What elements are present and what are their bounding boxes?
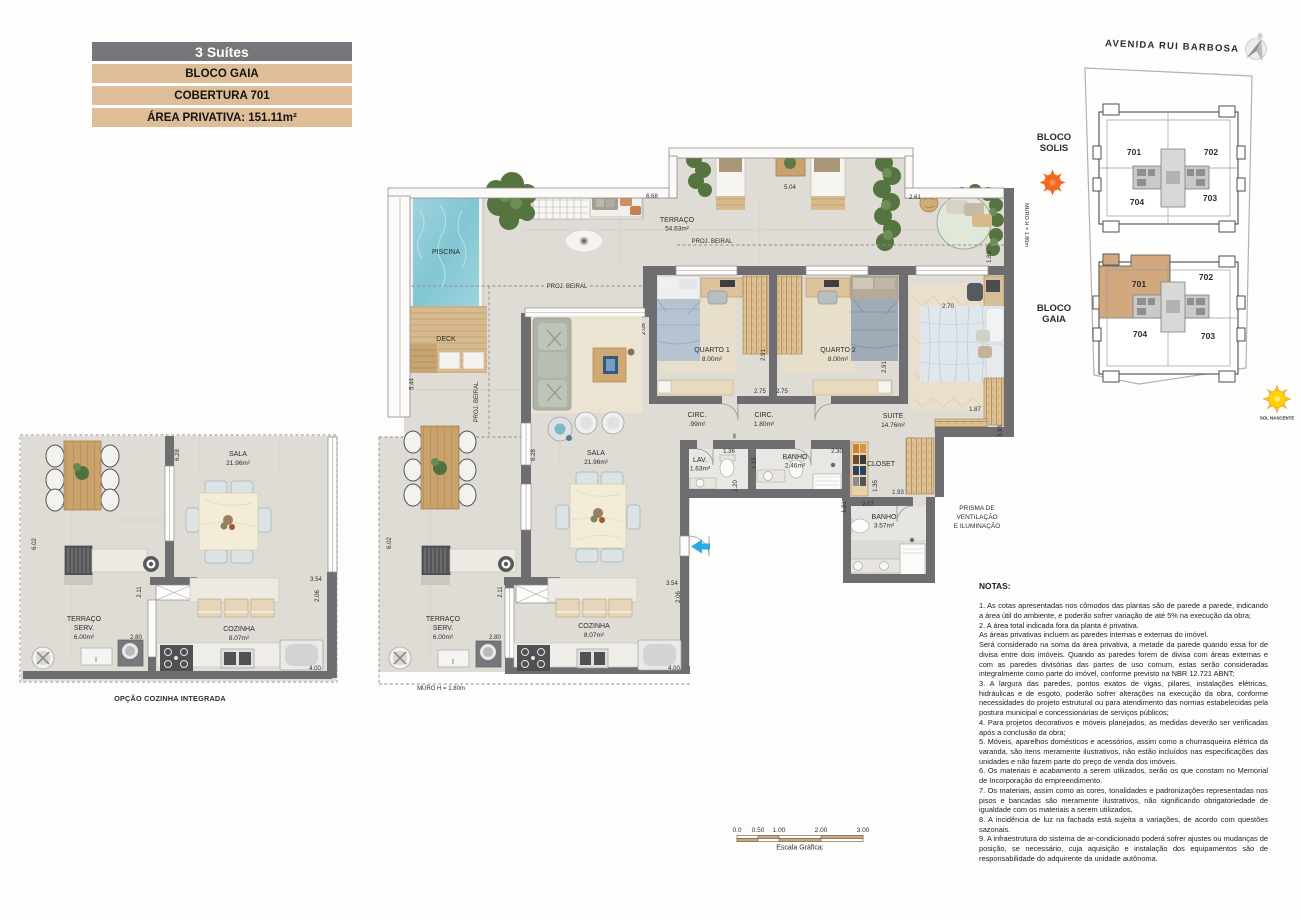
svg-text:1.81: 1.81 [842,501,848,513]
svg-text:1.80: 1.80 [987,251,993,263]
svg-text:8.00m²: 8.00m² [828,356,849,363]
svg-text:CLOSET: CLOSET [867,461,896,468]
svg-text:MURO H = 1.80m: MURO H = 1.80m [417,686,465,692]
svg-text:SOLIS: SOLIS [1040,143,1069,154]
svg-text:4.00: 4.00 [668,666,680,672]
svg-text:5.04: 5.04 [784,185,796,191]
svg-text:LAV.: LAV. [693,457,707,464]
svg-text:2.46m²: 2.46m² [785,463,806,470]
svg-text:PISCINA: PISCINA [432,249,460,256]
svg-text:GAIA: GAIA [1042,314,1066,325]
svg-text:703: 703 [1201,331,1215,341]
svg-text:SOL NASCENTE: SOL NASCENTE [1260,416,1294,421]
svg-text:3.54: 3.54 [666,581,678,587]
svg-text:CIRC.: CIRC. [754,412,773,419]
svg-text:QUARTO 1: QUARTO 1 [694,347,730,354]
svg-text:QUARTO 2: QUARTO 2 [820,347,856,354]
svg-text:SALA: SALA [229,451,247,458]
svg-text:3.93: 3.93 [998,425,1004,437]
svg-text:PRISMA DE: PRISMA DE [959,505,995,512]
svg-text:1.15: 1.15 [752,457,758,469]
svg-text:TERRAÇO: TERRAÇO [660,217,695,224]
svg-text:2.11: 2.11 [498,586,504,598]
svg-text:E ILUMINAÇÃO: E ILUMINAÇÃO [954,521,1001,530]
svg-text:BLOCO: BLOCO [1037,303,1071,314]
svg-text:TERRAÇO: TERRAÇO [426,616,461,623]
svg-text:701: 701 [1132,279,1146,289]
svg-text:0.50: 0.50 [752,827,765,834]
svg-text:704: 704 [1133,329,1147,339]
svg-text:TERRAÇO: TERRAÇO [67,616,102,623]
svg-text:6.68: 6.68 [646,194,658,200]
svg-text:1.93: 1.93 [892,490,904,496]
svg-text:3.00: 3.00 [857,827,870,834]
svg-text:AVENIDA RUI BARBOSA: AVENIDA RUI BARBOSA [1105,38,1240,55]
svg-text:Escala Gráfica:: Escala Gráfica: [776,845,824,852]
svg-text:6.28: 6.28 [175,449,181,461]
svg-text:8.00m²: 8.00m² [702,356,723,363]
svg-text:1.87: 1.87 [969,407,981,413]
svg-text:2.91: 2.91 [761,349,767,361]
svg-text:SALA: SALA [587,450,605,457]
svg-text:4.00: 4.00 [309,666,321,672]
svg-text:21.96m²: 21.96m² [226,460,251,467]
svg-text:54.63m²: 54.63m² [665,226,690,233]
svg-text:BLOCO: BLOCO [1037,132,1071,143]
svg-text:6.02: 6.02 [387,537,393,549]
svg-text:3.54: 3.54 [310,577,322,583]
svg-text:0.0: 0.0 [732,827,741,834]
svg-text:6.00m²: 6.00m² [74,634,95,641]
svg-text:8.07m²: 8.07m² [229,635,250,642]
svg-text:VENTILAÇÃO: VENTILAÇÃO [956,512,997,521]
svg-text:2.70: 2.70 [942,304,954,310]
svg-text:PROJ. BEIRAL: PROJ. BEIRAL [474,381,480,422]
svg-text:704: 704 [1130,197,1144,207]
svg-text:21.96m²: 21.96m² [584,459,609,466]
svg-text:2.80: 2.80 [130,635,142,641]
svg-text:5.44: 5.44 [410,378,416,390]
svg-text:2.75: 2.75 [754,389,766,395]
svg-text:COZINHA: COZINHA [578,623,610,630]
svg-text:PROJ. BEIRAL: PROJ. BEIRAL [547,284,588,290]
svg-text:MURO H = 1.80m: MURO H = 1.80m [1023,203,1029,247]
svg-text:1.63m²: 1.63m² [690,466,711,473]
svg-text:DECK: DECK [436,336,456,343]
svg-text:BANHO: BANHO [783,454,808,461]
svg-text:2.75: 2.75 [776,389,788,395]
svg-text:1.00: 1.00 [773,827,786,834]
svg-text:2.30: 2.30 [831,449,843,455]
svg-text:2.91: 2.91 [882,361,888,373]
svg-text:SERV.: SERV. [433,625,453,632]
svg-text:701: 701 [1127,147,1141,157]
svg-text:2.61: 2.61 [909,195,921,201]
svg-text:2.07: 2.07 [862,502,874,508]
svg-text:SUITE: SUITE [883,413,904,420]
svg-text:COZINHA: COZINHA [223,626,255,633]
svg-text:SERV.: SERV. [74,625,94,632]
svg-text:2.00: 2.00 [815,827,828,834]
svg-text:PROJ. BEIRAL: PROJ. BEIRAL [692,239,733,245]
svg-text:1.35: 1.35 [873,480,879,492]
svg-text:1.80m²: 1.80m² [754,421,775,428]
svg-text:6.02: 6.02 [32,538,38,550]
svg-text:2.80: 2.80 [489,635,501,641]
svg-text:6.00m²: 6.00m² [433,634,454,641]
svg-text:2.06: 2.06 [315,590,321,602]
svg-text:2.06: 2.06 [676,591,682,603]
svg-text:702: 702 [1199,272,1213,282]
svg-text:CIRC.: CIRC. [687,412,706,419]
svg-text:702: 702 [1204,147,1218,157]
svg-text:1.36: 1.36 [723,449,735,455]
svg-text:1.20: 1.20 [733,480,739,492]
svg-text:90: 90 [732,433,737,439]
svg-text:14.76m²: 14.76m² [881,422,906,429]
svg-text:8.07m²: 8.07m² [584,632,605,639]
svg-text:OPÇÃO COZINHA INTEGRADA: OPÇÃO COZINHA INTEGRADA [114,694,226,703]
svg-text:3.57m²: 3.57m² [874,523,895,530]
svg-text:703: 703 [1203,193,1217,203]
svg-text:.99m²: .99m² [689,421,706,428]
svg-text:6.28: 6.28 [531,449,537,461]
svg-text:2.11: 2.11 [137,586,143,598]
svg-text:BANHO: BANHO [872,514,897,521]
